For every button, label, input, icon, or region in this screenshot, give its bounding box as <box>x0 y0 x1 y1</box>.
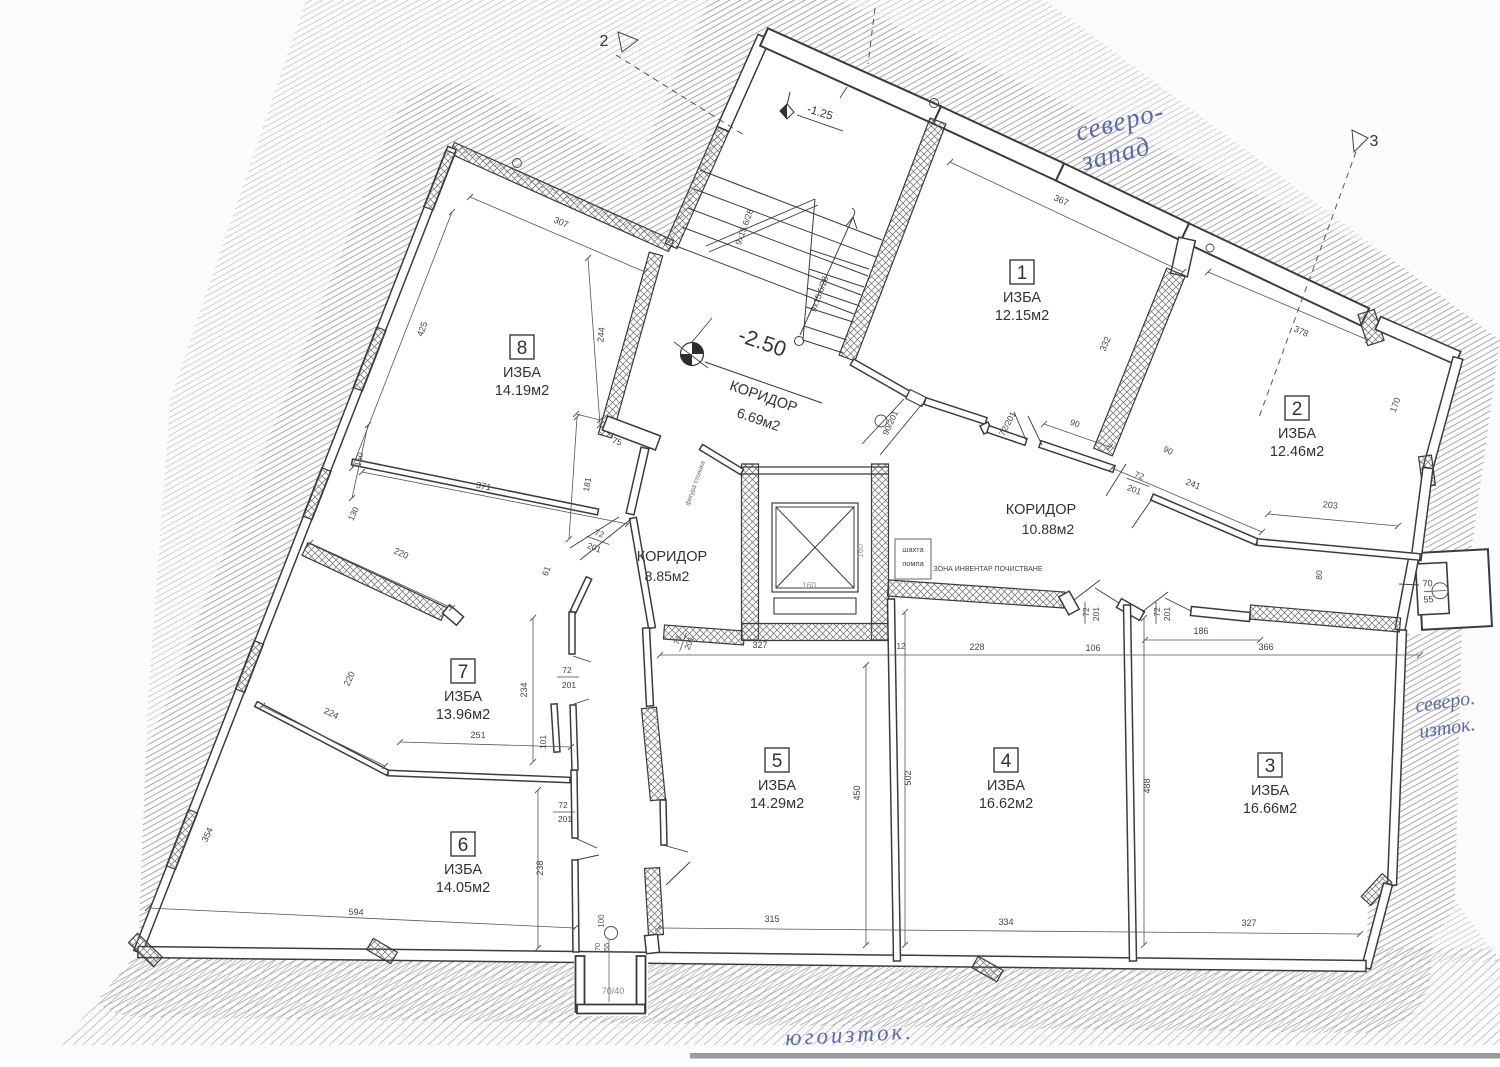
svg-text:70: 70 <box>593 943 602 951</box>
svg-text:6: 6 <box>458 835 469 856</box>
svg-text:ИЗБА: ИЗБА <box>1278 426 1316 442</box>
svg-text:1: 1 <box>1017 263 1028 284</box>
svg-text:14.29м2: 14.29м2 <box>750 796 804 812</box>
svg-text:160: 160 <box>802 580 816 590</box>
svg-text:13.96м2: 13.96м2 <box>436 707 490 723</box>
svg-text:4: 4 <box>1001 751 1012 772</box>
svg-text:шахта: шахта <box>902 545 924 554</box>
svg-text:5: 5 <box>772 751 783 772</box>
svg-text:55: 55 <box>602 943 611 951</box>
svg-text:12.15м2: 12.15м2 <box>995 308 1049 324</box>
svg-text:14.19м2: 14.19м2 <box>495 383 549 399</box>
svg-text:16.66м2: 16.66м2 <box>1243 801 1297 817</box>
svg-text:106: 106 <box>1085 643 1100 653</box>
svg-text:70: 70 <box>1422 578 1433 589</box>
svg-text:72: 72 <box>1081 607 1091 617</box>
svg-text:201: 201 <box>1091 607 1101 621</box>
svg-text:72: 72 <box>558 800 568 810</box>
svg-text:100: 100 <box>597 914 606 928</box>
svg-text:16.62м2: 16.62м2 <box>979 796 1033 812</box>
svg-text:2: 2 <box>600 33 609 50</box>
svg-text:КОРИДОР: КОРИДОР <box>1006 502 1076 518</box>
svg-text:ИЗБА: ИЗБА <box>987 778 1025 794</box>
svg-text:3: 3 <box>1370 133 1379 150</box>
svg-text:203: 203 <box>1322 499 1338 511</box>
svg-text:КОРИДОР: КОРИДОР <box>637 549 707 565</box>
svg-text:8.85м2: 8.85м2 <box>645 568 690 584</box>
svg-text:70/40: 70/40 <box>602 986 625 996</box>
svg-text:3: 3 <box>1265 756 1276 777</box>
svg-text:450: 450 <box>852 785 862 800</box>
svg-text:12: 12 <box>897 642 906 651</box>
svg-text:201: 201 <box>562 680 576 690</box>
svg-text:10.88м2: 10.88м2 <box>1022 521 1075 537</box>
svg-text:2: 2 <box>1292 399 1303 420</box>
svg-text:186: 186 <box>1193 626 1208 636</box>
svg-text:80: 80 <box>1314 570 1324 580</box>
svg-text:594: 594 <box>348 907 363 918</box>
svg-text:201: 201 <box>1162 607 1172 621</box>
svg-text:160: 160 <box>855 544 865 558</box>
svg-text:327: 327 <box>752 640 767 650</box>
svg-text:251: 251 <box>470 730 485 740</box>
svg-text:ИЗБА: ИЗБА <box>1003 290 1041 306</box>
svg-text:помпа: помпа <box>902 559 924 568</box>
svg-text:ИЗБА: ИЗБА <box>503 365 541 381</box>
svg-text:315: 315 <box>764 914 779 924</box>
svg-text:8: 8 <box>517 338 528 359</box>
svg-text:234: 234 <box>519 682 529 697</box>
svg-text:ИЗБА: ИЗБА <box>444 689 482 705</box>
svg-text:ИЗБА: ИЗБА <box>444 862 482 878</box>
svg-text:72: 72 <box>562 665 572 675</box>
svg-text:ИЗБА: ИЗБА <box>758 778 796 794</box>
svg-text:502: 502 <box>903 770 913 785</box>
svg-text:244: 244 <box>595 327 606 343</box>
svg-text:101: 101 <box>538 735 548 749</box>
svg-text:228: 228 <box>969 642 984 652</box>
svg-text:72: 72 <box>1152 607 1162 617</box>
svg-text:ИЗБА: ИЗБА <box>1251 783 1289 799</box>
svg-text:366: 366 <box>1258 642 1273 652</box>
svg-text:334: 334 <box>998 917 1013 927</box>
svg-text:488: 488 <box>1142 778 1152 793</box>
svg-text:327: 327 <box>1241 918 1256 928</box>
svg-text:7: 7 <box>458 662 469 683</box>
svg-text:14.05м2: 14.05м2 <box>436 880 490 896</box>
svg-text:238: 238 <box>535 860 545 875</box>
svg-text:55: 55 <box>1423 594 1434 605</box>
svg-text:12.46м2: 12.46м2 <box>1270 444 1324 460</box>
svg-text:ЗОНА ИНВЕНТАР ПОЧИСТВАНЕ: ЗОНА ИНВЕНТАР ПОЧИСТВАНЕ <box>933 566 1042 573</box>
svg-text:201: 201 <box>558 814 572 824</box>
